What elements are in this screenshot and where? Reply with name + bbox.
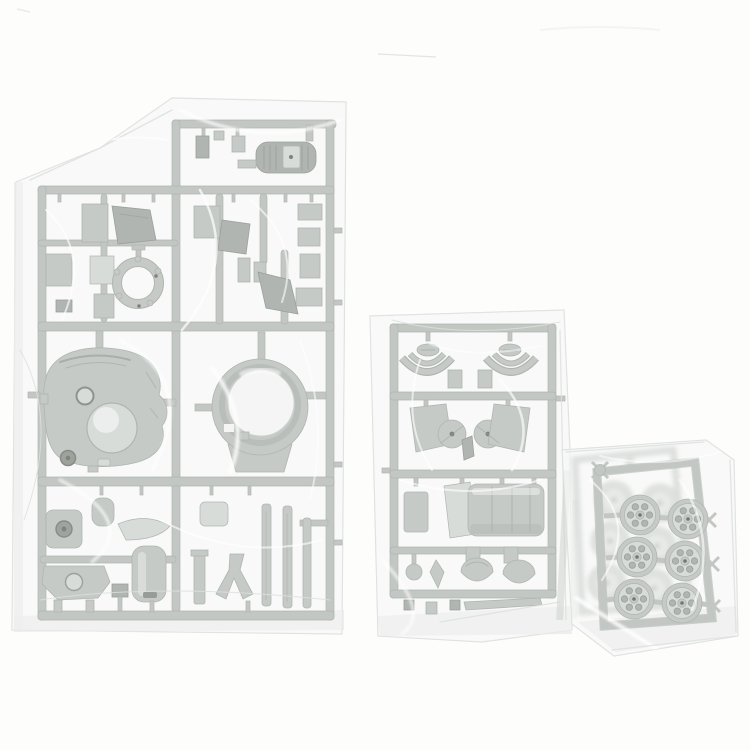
bag-wrinkles bbox=[370, 310, 572, 642]
bag-large-sprue bbox=[12, 98, 346, 634]
bag-wrinkles bbox=[12, 98, 346, 634]
photo-model-kit-sprues: Three sealed clear plastic bags of unass… bbox=[0, 0, 750, 750]
photo-frame: Three sealed clear plastic bags of unass… bbox=[0, 0, 750, 750]
bag-wheel-sprues bbox=[562, 440, 738, 656]
bag-wrinkles bbox=[562, 440, 738, 656]
bag-medium-sprue bbox=[370, 310, 572, 642]
